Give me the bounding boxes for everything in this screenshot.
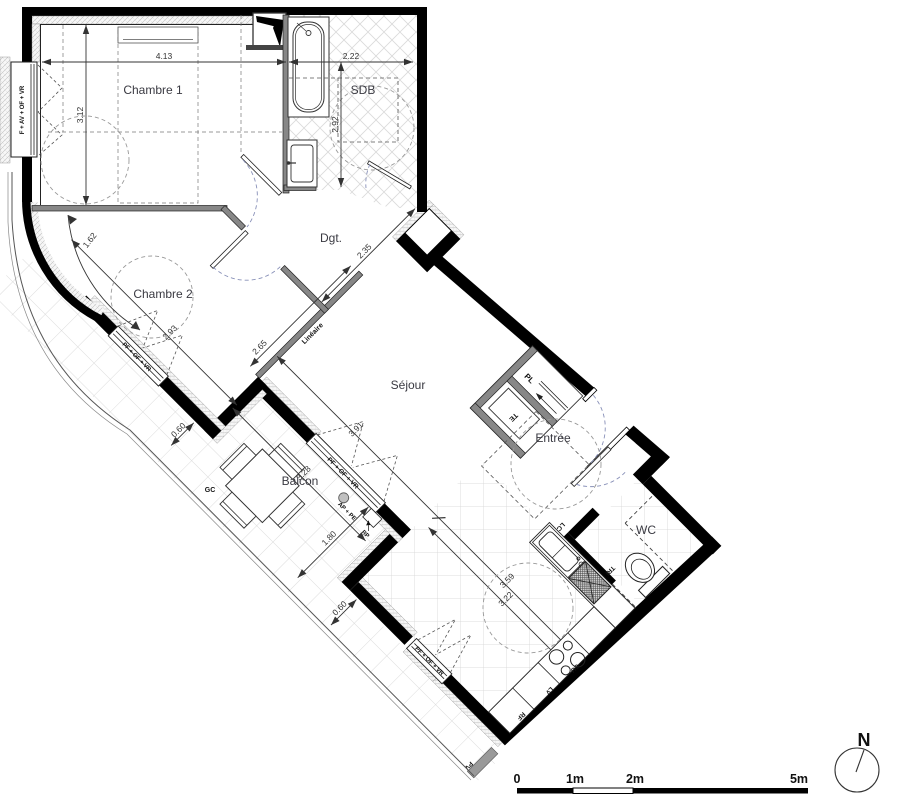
svg-text:WC: WC [636, 523, 656, 537]
svg-text:GC: GC [205, 487, 216, 494]
svg-text:4.13: 4.13 [156, 51, 173, 61]
svg-text:1m: 1m [566, 772, 584, 786]
svg-text:3.12: 3.12 [75, 106, 85, 123]
svg-text:2m: 2m [626, 772, 644, 786]
svg-text:F + AV + OF + VR: F + AV + OF + VR [20, 85, 26, 134]
svg-text:Séjour: Séjour [391, 378, 426, 392]
svg-text:Chambre 2: Chambre 2 [133, 287, 193, 301]
svg-text:Dgt.: Dgt. [320, 231, 342, 245]
svg-text:0: 0 [514, 772, 521, 786]
svg-text:SDB: SDB [351, 83, 376, 97]
svg-text:N: N [858, 730, 871, 750]
svg-text:Balcon: Balcon [282, 474, 319, 488]
svg-text:5m: 5m [790, 772, 808, 786]
svg-text:2.92: 2.92 [330, 116, 340, 133]
svg-text:Chambre 1: Chambre 1 [123, 83, 183, 97]
svg-text:2.22: 2.22 [343, 51, 360, 61]
svg-text:Entrée: Entrée [535, 431, 571, 445]
